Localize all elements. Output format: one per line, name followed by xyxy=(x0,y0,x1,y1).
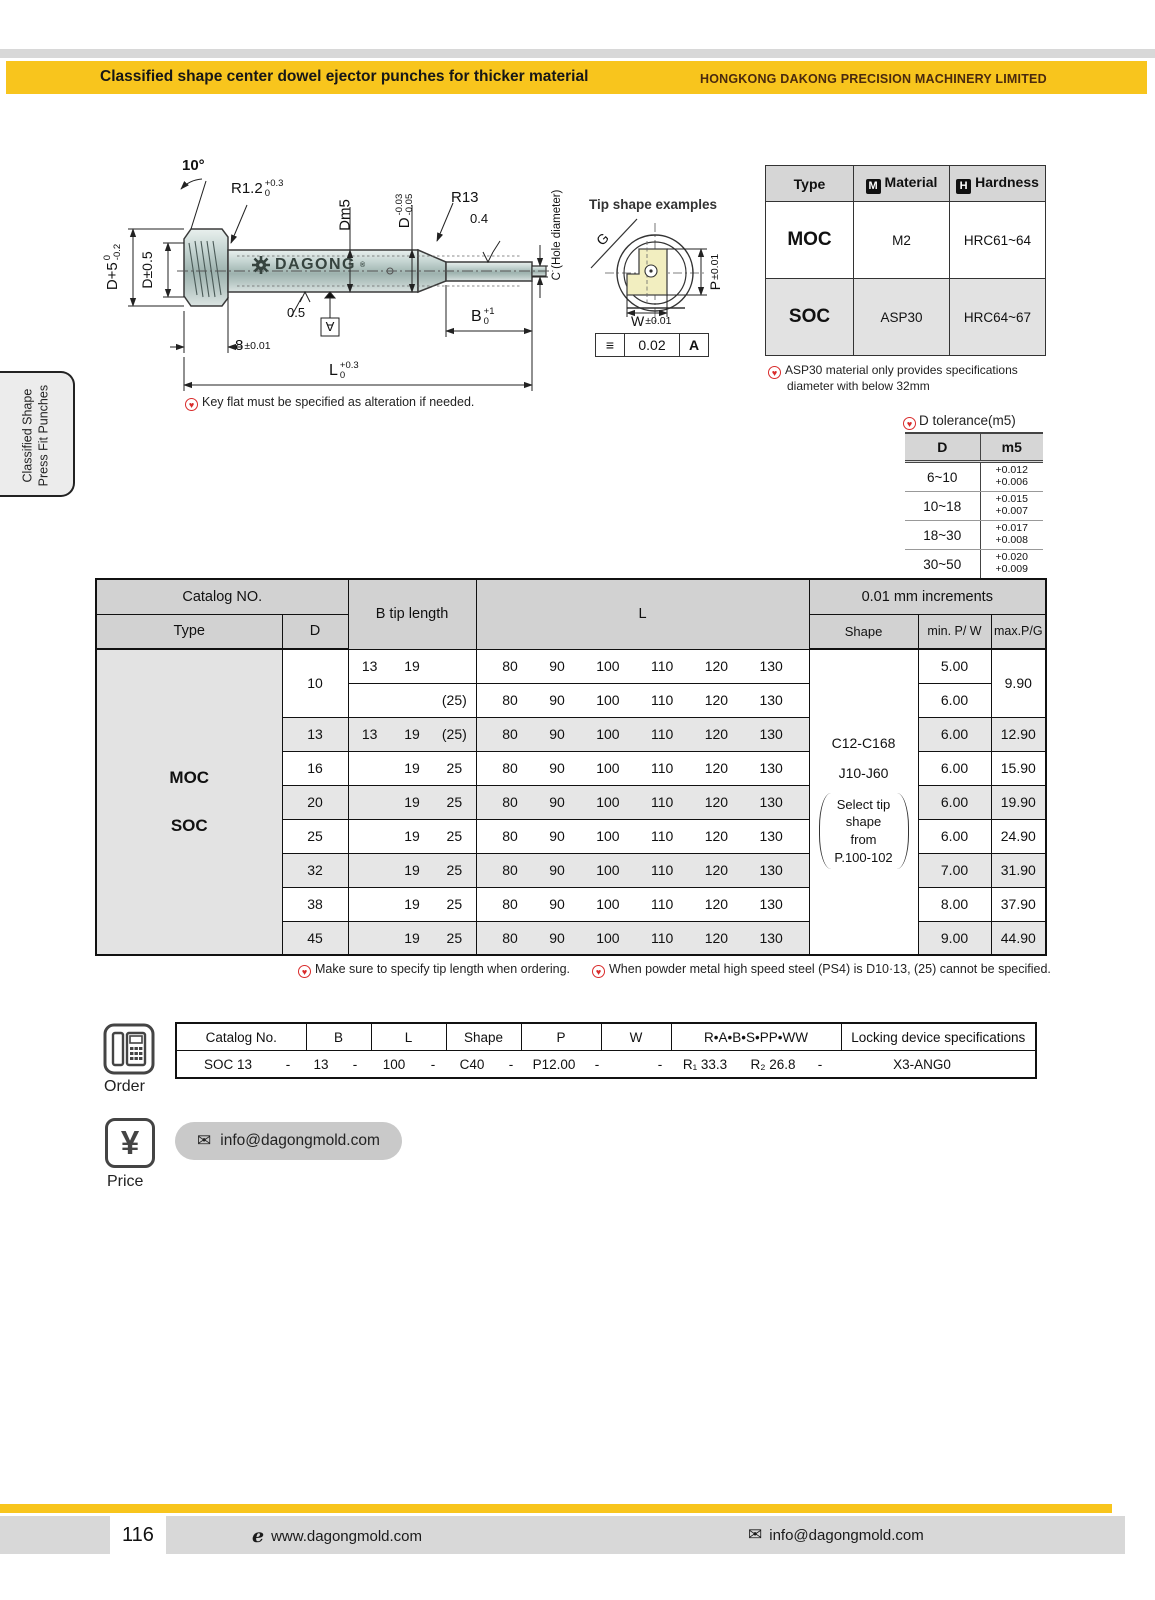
min-pw: 7.00 xyxy=(918,853,991,887)
btip-cell: 1319(25) xyxy=(348,717,476,751)
col-shape: Shape xyxy=(809,614,918,649)
max-pg: 15.90 xyxy=(991,751,1046,785)
d-tolerance-table: Dm5 6~10+0.012+0.006 10~18+0.015+0.007 1… xyxy=(905,432,1043,580)
ord-col-l: L xyxy=(371,1023,446,1051)
gear-icon xyxy=(251,255,271,275)
footer-yellow-bar xyxy=(0,1504,1112,1513)
table-row: 6~10+0.012+0.006 xyxy=(905,462,1043,492)
tolerance-value: 0.02 xyxy=(625,334,680,356)
d-value: 32 xyxy=(282,853,348,887)
l-cell: 8090100110120130 xyxy=(476,649,809,683)
ord-col-w: W xyxy=(601,1023,671,1051)
tip-length-note: Make sure to specify tip length when ord… xyxy=(298,962,570,978)
d-value: 13 xyxy=(282,717,348,751)
l-cell: 8090100110120130 xyxy=(476,683,809,717)
dim-l: L+0.30 xyxy=(329,361,359,381)
d-value: 10 xyxy=(282,649,348,717)
table-row: MOCSOC 10 1319 8090100110120130 C12-C168… xyxy=(96,649,1046,683)
table-row: 30~50+0.020+0.009 xyxy=(905,550,1043,580)
dim-d-pm05: D±0.5 xyxy=(139,251,155,288)
min-pw: 6.00 xyxy=(918,751,991,785)
page-title: Classified shape center dowel ejector pu… xyxy=(100,68,588,86)
ord-col-locking: Locking device specifications xyxy=(841,1023,1036,1051)
dim-d-plus5: D+50-0.2 xyxy=(103,244,123,290)
datum-a-symbol: A xyxy=(325,319,334,334)
dim-angle: 10° xyxy=(182,157,205,174)
email-address: info@dagongmold.com xyxy=(769,1527,923,1544)
max-pg: 24.90 xyxy=(991,819,1046,853)
technical-drawing: A 10° R1.2+0.30 Dm5 D-0.03-0.05 R13 0.4 … xyxy=(85,145,595,445)
l-cell: 8090100110120130 xyxy=(476,887,809,921)
mat-type: SOC xyxy=(766,279,854,356)
table-row: SOC ASP30 HRC64~67 xyxy=(766,279,1046,356)
dtol-col-d: D xyxy=(905,433,980,462)
l-cell: 8090100110120130 xyxy=(476,751,809,785)
ord-col-rabs: R•A•B•S•PP•WW xyxy=(671,1023,841,1051)
warning-icon xyxy=(903,417,916,430)
dim-d-tolerance: D-0.03-0.05 xyxy=(395,194,415,229)
footer-email[interactable]: ✉ info@dagongmold.com xyxy=(748,1525,924,1545)
min-pw: 6.00 xyxy=(918,683,991,717)
btip-cell: 1925 xyxy=(348,887,476,921)
type-cell: MOCSOC xyxy=(96,649,282,955)
max-pg: 12.90 xyxy=(991,717,1046,751)
warning-icon xyxy=(768,366,781,379)
top-gray-strip xyxy=(0,49,1155,58)
l-cell: 8090100110120130 xyxy=(476,717,809,751)
website-url: www.dagongmold.com xyxy=(271,1528,422,1545)
d-value: 16 xyxy=(282,751,348,785)
dim-finish-04: 0.4 xyxy=(470,211,488,226)
dim-w: W±0.01 xyxy=(631,313,671,329)
table-row: 10~18+0.015+0.007 xyxy=(905,492,1043,521)
catalog-table: Catalog NO. B tip length L 0.01 mm incre… xyxy=(95,578,1047,956)
warning-icon xyxy=(298,965,311,978)
catalog-page: Classified shape center dowel ejector pu… xyxy=(0,0,1155,1600)
max-pg: 44.90 xyxy=(991,921,1046,955)
min-pw: 6.00 xyxy=(918,785,991,819)
table-row: MOC M2 HRC61~64 xyxy=(766,202,1046,279)
material-icon: M xyxy=(866,179,881,194)
table-row: 18~30+0.017+0.008 xyxy=(905,521,1043,550)
mat-col-type: Type xyxy=(766,166,854,202)
min-pw: 8.00 xyxy=(918,887,991,921)
min-pw: 5.00 xyxy=(918,649,991,683)
brand-text: DAGONG xyxy=(275,256,356,274)
col-type: Type xyxy=(96,614,282,649)
max-pg: 31.90 xyxy=(991,853,1046,887)
shape-note: Select tipshape fromP.100-102 xyxy=(819,793,909,869)
footer-gray-left xyxy=(0,1516,110,1554)
dtol-col-m5: m5 xyxy=(980,433,1043,462)
l-cell: 8090100110120130 xyxy=(476,819,809,853)
col-d: D xyxy=(282,614,348,649)
mat-material: ASP30 xyxy=(854,279,950,356)
col-b-tip-length: B tip length xyxy=(348,579,476,649)
dim-finish-05: 0.5 xyxy=(287,305,305,320)
col-min-pw: min. P/ W xyxy=(918,614,991,649)
material-table: Type MMaterial HHardness MOC M2 HRC61~64… xyxy=(765,165,1046,356)
btip-cell: 1925 xyxy=(348,819,476,853)
tip-example-svg xyxy=(575,213,775,328)
shape-cell: C12-C168 J10-J60 Select tipshape fromP.1… xyxy=(809,649,918,955)
max-pg: 37.90 xyxy=(991,887,1046,921)
tolerance-frame: ≡ 0.02 A xyxy=(595,333,709,357)
d-value: 25 xyxy=(282,819,348,853)
dim-p: P±0.01 xyxy=(707,254,723,291)
email-address: info@dagongmold.com xyxy=(220,1132,380,1150)
company-name: HONGKONG DAKONG PRECISION MACHINERY LIMI… xyxy=(700,72,1047,86)
l-cell: 8090100110120130 xyxy=(476,921,809,955)
dim-r12: R1.2+0.30 xyxy=(231,179,283,199)
dim-b: B+10 xyxy=(471,307,495,327)
btip-cell: 1925 xyxy=(348,921,476,955)
ord-col-catalog: Catalog No. xyxy=(176,1023,306,1051)
key-flat-note: Key flat must be specified as alteration… xyxy=(185,395,474,411)
order-label: Order xyxy=(104,1078,145,1096)
mat-material: M2 xyxy=(854,202,950,279)
ord-col-b: B xyxy=(306,1023,371,1051)
tip-example-title: Tip shape examples xyxy=(589,197,717,212)
warning-icon xyxy=(185,398,198,411)
dim-r13: R13 xyxy=(451,189,479,206)
footer-website[interactable]: e www.dagongmold.com xyxy=(252,1525,422,1547)
d-tolerance-title: D tolerance(m5) xyxy=(903,413,1016,430)
max-pg: 9.90 xyxy=(991,649,1046,717)
email-pill[interactable]: ✉ info@dagongmold.com xyxy=(175,1122,402,1160)
dim-8: 8±0.01 xyxy=(235,337,271,354)
asp30-note: ASP30 material only provides specificati… xyxy=(768,363,1018,395)
order-icon xyxy=(103,1023,155,1080)
brand-logo: DAGONG® xyxy=(251,255,367,275)
warning-icon xyxy=(592,965,605,978)
mat-type: MOC xyxy=(766,202,854,279)
min-pw: 9.00 xyxy=(918,921,991,955)
order-table: Catalog No. B L Shape P W R•A•B•S•PP•WW … xyxy=(175,1022,1037,1079)
l-cell: 8090100110120130 xyxy=(476,853,809,887)
tip-shape-example: Tip shape examples G P±0.01 W±0.01 xyxy=(575,195,775,360)
btip-cell: 1925 xyxy=(348,751,476,785)
envelope-icon: ✉ xyxy=(748,1525,762,1545)
sidebar-tab-label: Classified Shape Press Fit Punches xyxy=(20,376,51,496)
d-value: 20 xyxy=(282,785,348,819)
d-value: 38 xyxy=(282,887,348,921)
min-pw: 6.00 xyxy=(918,717,991,751)
mat-hardness: HRC64~67 xyxy=(950,279,1046,356)
ord-col-p: P xyxy=(521,1023,601,1051)
btip-cell: 1925 xyxy=(348,785,476,819)
col-increments: 0.01 mm increments xyxy=(809,579,1046,614)
col-catalog-no: Catalog NO. xyxy=(96,579,348,614)
hardness-icon: H xyxy=(956,179,971,194)
l-cell: 8090100110120130 xyxy=(476,785,809,819)
btip-cell: 1925 xyxy=(348,853,476,887)
col-max-pg: max.P/G xyxy=(991,614,1046,649)
ord-col-shape: Shape xyxy=(446,1023,521,1051)
order-example-row: SOC 13- 13- 100- C40- P12.00- - R₁ 33.3R… xyxy=(176,1051,1036,1079)
mat-col-hardness: HHardness xyxy=(950,166,1046,202)
price-icon: ¥ xyxy=(105,1118,155,1168)
mat-hardness: HRC61~64 xyxy=(950,202,1046,279)
tolerance-datum: A xyxy=(680,334,708,356)
envelope-icon: ✉ xyxy=(197,1131,211,1151)
btip-cell: 1319 xyxy=(348,649,476,683)
col-l: L xyxy=(476,579,809,649)
browser-icon: e xyxy=(252,1525,264,1547)
page-number: 116 xyxy=(110,1516,166,1554)
min-pw: 6.00 xyxy=(918,819,991,853)
dim-c-hole: C (Hole diameter) xyxy=(551,190,563,281)
mat-col-material: MMaterial xyxy=(854,166,950,202)
dim-dm5: Dm5 xyxy=(337,199,354,231)
symmetry-symbol-icon: ≡ xyxy=(596,334,625,356)
sidebar-tab[interactable]: Classified Shape Press Fit Punches xyxy=(0,371,75,497)
d-value: 45 xyxy=(282,921,348,955)
max-pg: 19.90 xyxy=(991,785,1046,819)
btip-cell: (25) xyxy=(348,683,476,717)
price-label: Price xyxy=(107,1173,143,1191)
ps4-note: When powder metal high speed steel (PS4)… xyxy=(592,962,1051,978)
